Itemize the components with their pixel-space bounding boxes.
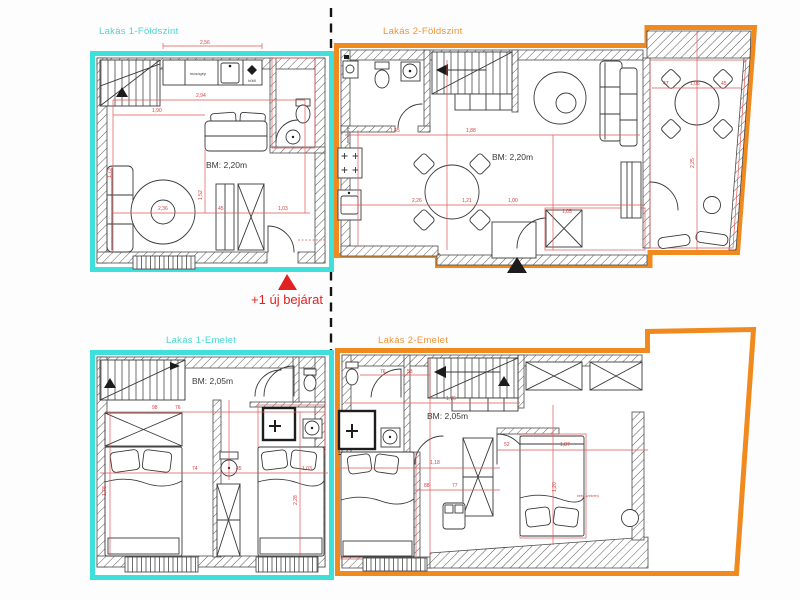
washer-label-vertical: mosógép: [345, 126, 350, 143]
plan-lakas1-foldszint: mosógép hűtő: [93, 43, 332, 270]
plan-lakas2-emelet: beép.szekrény BM: 2,05m: [338, 330, 754, 574]
toilet-tank: [346, 362, 358, 368]
svg-text:1,76: 1,76: [446, 396, 456, 402]
stove: [338, 148, 362, 178]
svg-text:1,88: 1,88: [466, 128, 476, 134]
svg-text:88: 88: [424, 483, 430, 489]
balcony-railing: [256, 557, 318, 572]
svg-text:58: 58: [407, 369, 413, 375]
wc-room: [304, 369, 316, 391]
svg-text:2,25: 2,25: [690, 158, 696, 168]
svg-text:1,20: 1,20: [552, 482, 558, 492]
bed-foot: [343, 541, 412, 556]
bedroom-left: [105, 413, 182, 556]
svg-text:1,90: 1,90: [152, 108, 162, 114]
pillow: [110, 449, 141, 473]
svg-text:45: 45: [218, 206, 224, 212]
pillow: [553, 507, 579, 528]
kitchen-counter: mosógép hűtő: [163, 60, 262, 85]
bed-foot: [108, 538, 179, 554]
wardrobe: [216, 184, 264, 250]
svg-text:76: 76: [380, 369, 386, 375]
basin: [343, 61, 358, 78]
sofa: [600, 61, 622, 141]
svg-text:2,28: 2,28: [293, 495, 299, 505]
ceiling-height-p1: BM: 2,20m: [206, 160, 247, 170]
title-lakas1-foldszint: Lakás 1-Földszint: [99, 26, 179, 37]
closet-label: beép.szekrény: [577, 494, 599, 498]
pillow: [525, 507, 551, 528]
svg-text:1,05: 1,05: [562, 209, 572, 215]
floorplan-sheet: mosógép hűtő: [0, 0, 800, 600]
toilet-tank: [304, 369, 316, 375]
svg-text:2,56: 2,56: [200, 40, 210, 46]
shower: [263, 408, 295, 440]
title-lakas2-emelet: Lakás 2-Emelet: [378, 335, 448, 346]
svg-text:52: 52: [504, 442, 510, 448]
svg-text:1,06: 1,06: [690, 81, 700, 87]
balcony-railing: [125, 557, 198, 572]
svg-text:77: 77: [452, 483, 458, 489]
svg-text:45: 45: [236, 466, 242, 472]
svg-text:45: 45: [721, 81, 727, 87]
ceiling-height-p2: BM: 2,20m: [492, 152, 533, 162]
round-table: [131, 180, 195, 244]
svg-text:2,26: 2,26: [412, 198, 422, 204]
bedroom-right: [258, 447, 324, 556]
new-entrance-triangle: [278, 274, 297, 290]
svg-text:1,87: 1,87: [560, 442, 570, 448]
fridge-label: hűtő: [248, 78, 257, 83]
planter: [704, 197, 721, 214]
svg-text:1,21: 1,21: [462, 198, 472, 204]
hall-wardrobe: [463, 438, 493, 516]
plan-lakas2-foldszint: mosógép: [337, 28, 755, 274]
svg-text:47: 47: [663, 81, 669, 87]
toilet: [346, 369, 358, 385]
svg-text:1,45: 1,45: [390, 128, 400, 134]
apartment2-groundfloor-outline: [337, 28, 755, 266]
round-lounge-chair: [534, 72, 586, 124]
svg-text:1,18: 1,18: [430, 460, 440, 466]
title-lakas1-emelet: Lakás 1-Emelet: [166, 335, 236, 346]
svg-text:1,00: 1,00: [508, 198, 518, 204]
pillow: [261, 449, 288, 470]
svg-text:1,52: 1,52: [198, 190, 204, 200]
staircase: [100, 60, 160, 106]
staircase: [100, 360, 185, 400]
bedroom-left: [341, 452, 427, 571]
pillow: [374, 454, 399, 475]
toilet: [375, 70, 389, 88]
svg-text:1,78: 1,78: [102, 486, 108, 496]
new-entrance-annotation: +1 új bejárat: [251, 274, 323, 307]
pillow: [347, 453, 372, 474]
title-lakas2-foldszint: Lakás 2-Földszint: [383, 26, 463, 37]
svg-text:74: 74: [192, 466, 198, 472]
ceiling-height-p3: BM: 2,05m: [192, 376, 233, 386]
stool: [443, 503, 465, 529]
new-entrance-label: +1 új bejárat: [251, 292, 323, 307]
svg-text:1,03: 1,03: [302, 466, 312, 472]
svg-text:2,94: 2,94: [196, 93, 206, 99]
balcony-railing: [133, 256, 195, 269]
balcony-railing: [363, 558, 427, 571]
svg-text:2,36: 2,36: [158, 206, 168, 212]
toilet: [304, 375, 316, 391]
plan-lakas1-emelet: BM: 2,05m: [93, 353, 332, 578]
washing-machine: [622, 510, 639, 527]
svg-text:76: 76: [175, 405, 181, 411]
washer-label: mosógép: [190, 71, 207, 76]
toilet-tank: [375, 62, 389, 69]
ceiling-height-p4: BM: 2,05m: [427, 411, 468, 421]
pillow: [142, 449, 172, 472]
couch: [205, 112, 267, 151]
bed-foot: [260, 538, 322, 554]
svg-text:98: 98: [152, 405, 158, 411]
svg-text:1,73: 1,73: [107, 168, 113, 178]
floorplan-canvas: mosógép hűtő: [0, 0, 800, 600]
svg-text:1,03: 1,03: [278, 206, 288, 212]
